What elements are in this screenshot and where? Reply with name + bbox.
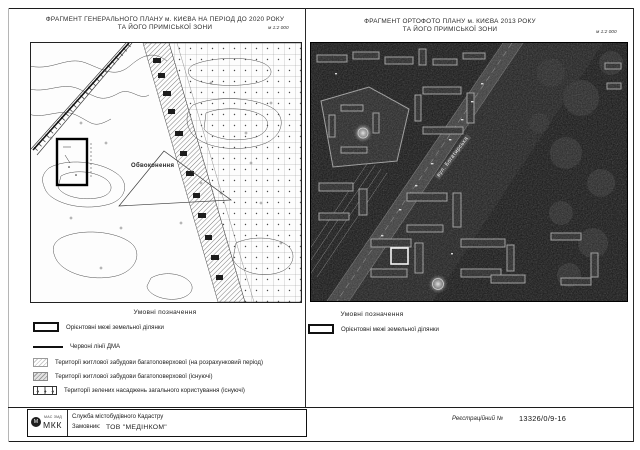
right-map-title-line1: ФРАГМЕНТ ОРТОФОТО ПЛАНУ м. КИЄВА 2013 РО… bbox=[330, 18, 570, 26]
footer-title-block: М МАС ЗМД МКК Служба містобудівного Када… bbox=[27, 409, 307, 437]
dots-green-swatch-icon bbox=[33, 386, 57, 395]
hatch-existing-swatch-icon bbox=[33, 372, 48, 381]
legend-item-parcel-right: Орієнтовні межі земельної ділянки bbox=[308, 324, 439, 334]
right-legend-title: Умовні позначення bbox=[310, 311, 434, 318]
mkk-logo-caption: МАС ЗМД bbox=[44, 415, 62, 419]
footer-client-label: Замовник: bbox=[72, 424, 101, 430]
general-plan-place-label: Обвоконення bbox=[131, 163, 174, 169]
left-map-title: ФРАГМЕНТ ГЕНЕРАЛЬНОГО ПЛАНУ м. КИЄВА НА … bbox=[40, 16, 290, 32]
legend-item-label: Території зелених насаджень загального к… bbox=[64, 387, 245, 394]
frame-top-line bbox=[8, 8, 634, 9]
legend-item-label: Території житлової забудови багатоповерх… bbox=[55, 373, 212, 380]
registration-number-value: 13326/0/9-16 bbox=[519, 414, 566, 423]
mkk-logo-icon: М bbox=[31, 417, 41, 427]
frame-left-line bbox=[8, 8, 9, 442]
legend-item-green-areas: Території зелених насаджень загального к… bbox=[33, 386, 245, 395]
legend-item-label: Орієнтовні межі земельної ділянки bbox=[66, 324, 164, 331]
left-legend-title: Умовні позначення bbox=[30, 309, 300, 316]
legend-item-label: Території житлової забудови багатоповерх… bbox=[55, 359, 263, 366]
right-map-title-line2: ТА ЙОГО ПРИМІСЬКОЇ ЗОНИ bbox=[330, 26, 570, 34]
legend-item-housing-planned: Території житлової забудови багатоповерх… bbox=[33, 358, 263, 367]
orthophoto-map: вул. Богатирська bbox=[310, 42, 628, 302]
registration-number-label: Реєстраційний № bbox=[452, 416, 503, 422]
parcel-boundary-swatch-icon bbox=[308, 324, 334, 334]
hatch-planned-swatch-icon bbox=[33, 358, 48, 367]
left-map-scale: м 1:2 000 bbox=[268, 26, 289, 31]
legend-item-housing-existing: Території житлової забудови багатоповерх… bbox=[33, 372, 212, 381]
mkk-logo-text: МКК bbox=[43, 420, 62, 430]
frame-bottom-line bbox=[8, 441, 634, 442]
frame-right-line bbox=[633, 8, 634, 442]
footer-org-line: Служба містобудівного Кадастру bbox=[72, 414, 163, 420]
left-map-title-line2: ТА ЙОГО ПРИМІСЬКОЇ ЗОНИ bbox=[40, 24, 290, 32]
right-map-title: ФРАГМЕНТ ОРТОФОТО ПЛАНУ м. КИЄВА 2013 РО… bbox=[330, 18, 570, 34]
left-map-title-line1: ФРАГМЕНТ ГЕНЕРАЛЬНОГО ПЛАНУ м. КИЄВА НА … bbox=[40, 16, 290, 24]
legend-item-label: Орієнтовні межі земельної ділянки bbox=[341, 326, 439, 333]
general-plan-drawing bbox=[31, 43, 301, 302]
legend-item-red-lines: Червоні лінії ДМА bbox=[33, 343, 120, 350]
right-map-scale: м 1:2 000 bbox=[596, 30, 617, 35]
footer-cell-divider bbox=[67, 410, 68, 436]
orthophoto-image bbox=[311, 43, 627, 301]
red-line-swatch-icon bbox=[33, 346, 63, 348]
center-divider-line bbox=[305, 8, 306, 408]
legend-item-parcel: Орієнтовні межі земельної ділянки bbox=[33, 322, 164, 332]
legend-item-label: Червоні лінії ДМА bbox=[70, 343, 120, 350]
footer-client-value: ТОВ "МЕДІНКОМ" bbox=[106, 424, 167, 431]
scanned-map-sheet: ФРАГМЕНТ ГЕНЕРАЛЬНОГО ПЛАНУ м. КИЄВА НА … bbox=[0, 0, 640, 450]
general-plan-map: Обвоконення bbox=[30, 42, 302, 303]
parcel-boundary-swatch-icon bbox=[33, 322, 59, 332]
